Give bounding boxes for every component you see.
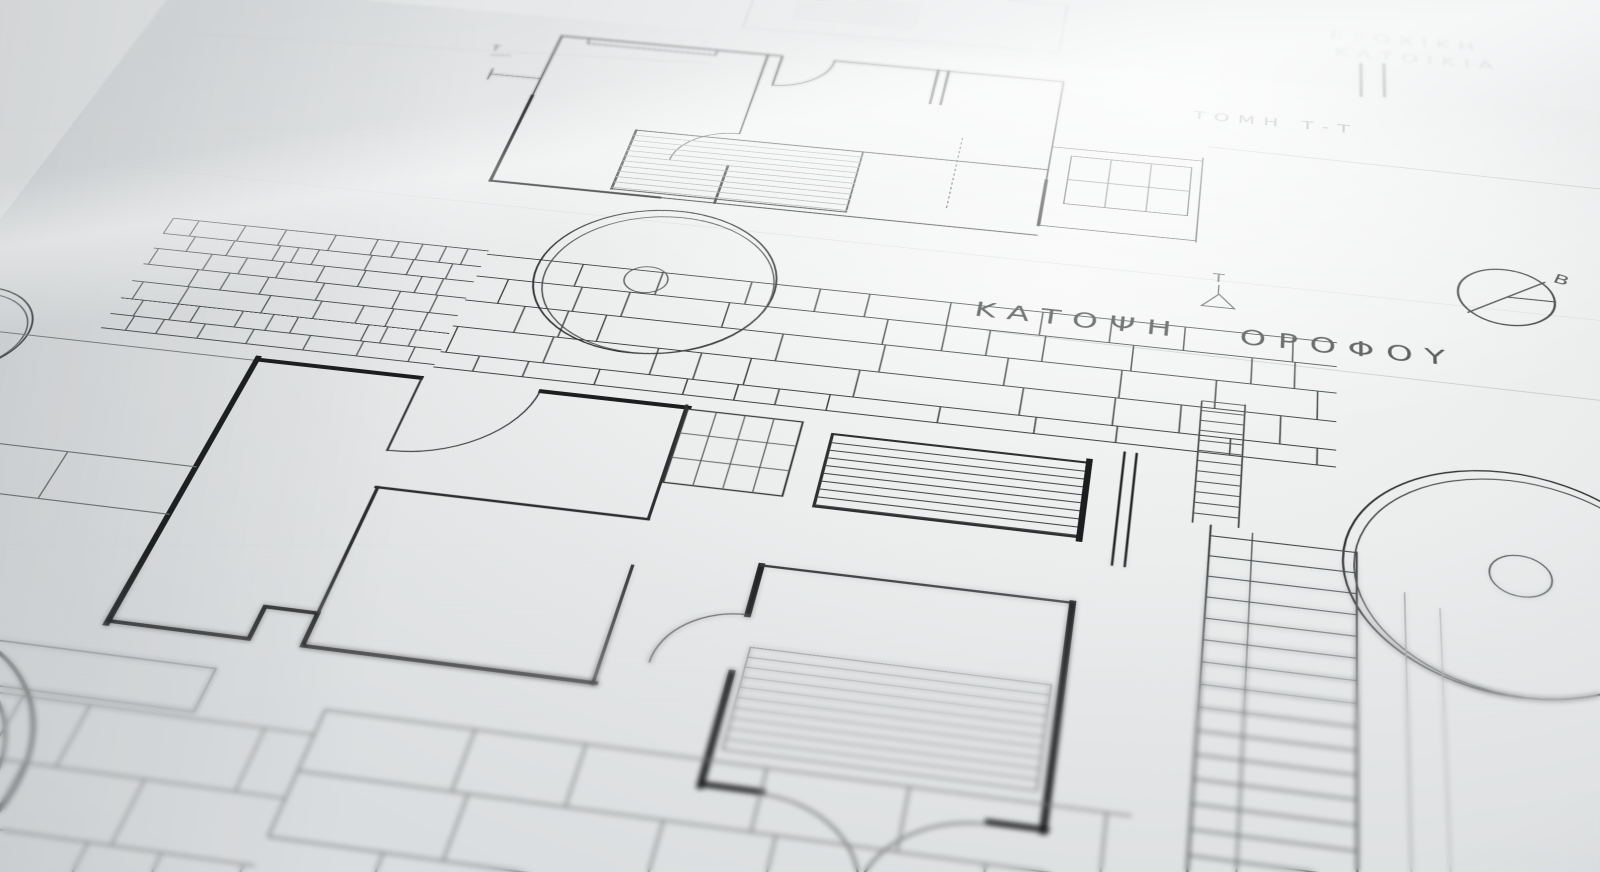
tile-line	[406, 260, 414, 275]
tile-line	[111, 779, 145, 845]
tile-line	[226, 241, 235, 256]
wall-thick	[941, 71, 949, 104]
tile-line	[328, 235, 337, 250]
wall	[1052, 147, 1203, 161]
floor-plan-drawing: ΕΞΟΧΙΚΗ ΚΑΤΟΙΚΙΑ ΤΟΜΗ Τ-Τ ΚΑΤΟΨΗ ΟΡΟΦΟΥ …	[0, 0, 1600, 872]
tile-line	[1317, 391, 1318, 420]
tile-line	[311, 250, 319, 265]
tile-line	[775, 334, 783, 361]
window	[587, 43, 715, 55]
door-arc	[854, 809, 989, 872]
tile-line	[619, 171, 851, 194]
tree-canopy-icon	[0, 595, 98, 872]
tile-line	[975, 864, 986, 872]
tile-line	[415, 244, 423, 260]
window-tick	[716, 50, 718, 55]
north-symbol: Β	[1456, 261, 1578, 332]
tile-line	[1195, 492, 1240, 497]
tile-line	[202, 254, 212, 270]
tile-line	[596, 315, 606, 341]
tile-line	[682, 379, 687, 395]
tile-line	[723, 416, 746, 490]
tile-line	[734, 708, 1043, 748]
tile-line	[1068, 180, 1190, 192]
tree-canopy-icon	[1354, 463, 1600, 719]
tile-line	[443, 794, 468, 861]
tile-line	[385, 309, 394, 327]
tile-line	[1112, 398, 1115, 426]
tile-line	[446, 326, 458, 352]
tile-line	[429, 295, 438, 312]
tree-trunk-icon	[1488, 552, 1554, 600]
tile-line	[1192, 804, 1357, 826]
tile-line	[315, 283, 325, 300]
tree-symbol-right	[1342, 455, 1600, 720]
tile-line	[594, 369, 600, 385]
tile-line	[1196, 481, 1241, 486]
terrace-line	[0, 476, 169, 514]
tile-line	[1197, 460, 1242, 465]
wall	[740, 55, 768, 134]
tile-line	[644, 820, 664, 872]
tile-line	[259, 277, 269, 294]
tile-line	[265, 314, 274, 330]
tile-line	[1197, 731, 1357, 751]
wall	[562, 36, 781, 56]
tile-line	[775, 389, 780, 405]
tile-line	[298, 710, 326, 771]
tile-line	[131, 853, 162, 872]
wall-thick	[989, 822, 1046, 830]
tile-line	[1280, 416, 1281, 444]
wall-stub	[490, 74, 541, 79]
tile-line	[357, 270, 366, 286]
tile-line	[832, 443, 1088, 472]
tile-line	[826, 395, 830, 411]
tile-area-outline	[663, 409, 803, 496]
wall-thick	[701, 784, 761, 792]
marker-tick	[1218, 285, 1219, 294]
tile-line	[1207, 576, 1356, 594]
faint-line	[743, 24, 1060, 56]
tile-line	[392, 291, 401, 308]
tile-line	[1119, 370, 1122, 398]
tile-grid-small	[1064, 156, 1192, 216]
tile-line	[148, 249, 158, 265]
faint-wall	[1384, 63, 1385, 97]
tile-line	[693, 412, 717, 485]
wall-thick	[542, 391, 689, 407]
tile-line	[1198, 707, 1357, 727]
wall	[863, 152, 1048, 170]
tile-line	[882, 319, 888, 344]
tile-line	[612, 187, 846, 210]
tile-line	[743, 358, 751, 385]
tile-line	[178, 287, 189, 304]
tile-line	[655, 273, 663, 295]
tile-line	[380, 327, 388, 343]
tile-line	[621, 292, 630, 316]
tile-line	[1206, 597, 1357, 615]
tile-line	[1202, 662, 1357, 681]
wall-thick	[1038, 180, 1046, 225]
stair-treads-lower	[725, 657, 1049, 779]
tile-line	[728, 728, 1040, 768]
tile-line	[826, 466, 1085, 496]
tile-line	[522, 361, 529, 376]
tile-line	[742, 677, 1047, 716]
tile-line	[626, 156, 856, 178]
tile-line	[355, 306, 364, 324]
tile-line	[1194, 779, 1358, 800]
tile-line	[1251, 358, 1252, 384]
tile-line	[276, 262, 285, 278]
tile-line	[734, 384, 739, 400]
tile-line	[1205, 618, 1357, 636]
upper-floor-plan	[437, 31, 1209, 251]
door-arc	[772, 57, 834, 90]
wall-thick	[748, 565, 762, 614]
tile-line	[238, 258, 248, 274]
tile-line	[121, 298, 449, 334]
wall	[1196, 158, 1203, 242]
tree-symbol-bottom-left	[0, 594, 98, 872]
walkway-tiles	[1146, 400, 1462, 872]
tile-line	[1200, 430, 1244, 435]
tile-line	[1003, 358, 1008, 386]
tile-line	[419, 312, 428, 330]
tile-line	[189, 221, 199, 236]
tile-line	[360, 325, 368, 341]
ground-floor-plan	[0, 323, 1137, 872]
tile-line	[1215, 380, 1217, 408]
tile-line	[748, 657, 1050, 695]
tile-line	[316, 266, 325, 282]
plan-title: ΚΑΤΟΨΗ ΟΡΟΦΟΥ	[972, 298, 1457, 372]
tile-line	[514, 306, 526, 332]
wall-thick	[107, 358, 258, 624]
tile-line	[487, 254, 1337, 343]
tile-line	[0, 867, 226, 872]
tile-line	[497, 279, 508, 303]
architectural-blueprint-photo: ΕΞΟΧΙΚΗ ΚΑΤΟΙΚΙΑ ΤΟΜΗ Τ-Τ ΚΑΤΟΨΗ ΟΡΟΦΟΥ …	[0, 0, 1600, 872]
wall	[1038, 225, 1195, 241]
tile-line	[1190, 829, 1357, 851]
tile-line	[820, 489, 1082, 519]
tile-line	[154, 248, 474, 282]
terrace-tick	[38, 452, 68, 499]
section-arrow-icon	[1202, 293, 1236, 309]
tile-line	[163, 233, 481, 266]
faint-line	[1207, 147, 1600, 202]
garden-path-tiles	[100, 218, 1337, 467]
tile-line	[1199, 440, 1243, 445]
tile-line	[941, 326, 946, 351]
walkway-edge	[1357, 551, 1358, 872]
hidden-edge-dotted	[946, 138, 963, 210]
stair-treads-upper	[612, 135, 861, 210]
double-wall	[1125, 454, 1137, 567]
double-wall	[1112, 452, 1125, 565]
tile-line	[312, 301, 322, 319]
tree-symbol-left-edge	[0, 280, 56, 380]
tile-line	[408, 347, 415, 362]
tile-area-outline	[1064, 156, 1192, 216]
tile-line	[1188, 855, 1357, 872]
tile-line	[739, 687, 1045, 726]
faint-line	[279, 0, 585, 10]
tile-line	[277, 230, 286, 245]
tile-line	[1230, 439, 1231, 456]
tile-line	[814, 289, 820, 312]
tile-line	[816, 505, 1080, 536]
tile-line	[725, 739, 1038, 780]
tile-line	[1195, 754, 1357, 775]
tile-line	[1203, 640, 1357, 659]
tile-line	[572, 287, 582, 311]
door-arc	[649, 605, 747, 673]
tile-line	[156, 319, 165, 333]
tile-line	[737, 697, 1045, 736]
tile-line	[188, 270, 199, 287]
tile-line	[163, 218, 173, 233]
tile-line	[822, 481, 1083, 511]
terrace-line	[0, 430, 196, 466]
tile-line	[1193, 513, 1239, 518]
north-letter: Β	[1550, 271, 1572, 288]
tile-line	[1202, 401, 1245, 406]
tile-line	[751, 768, 767, 832]
tile-line	[303, 335, 311, 350]
tile-line	[745, 667, 1049, 705]
tile-line	[937, 407, 940, 423]
tile-line	[828, 458, 1086, 487]
tile-line	[1131, 345, 1134, 371]
tile-line	[234, 311, 243, 327]
tile-line	[621, 166, 852, 189]
tile-line	[1294, 362, 1295, 388]
tile-line	[946, 303, 951, 326]
wall-thick	[930, 70, 938, 103]
tile-line	[460, 249, 468, 265]
door-leaf	[387, 378, 422, 450]
tile-line	[1019, 388, 1024, 415]
tile-line	[799, 0, 922, 6]
tile-line	[186, 237, 195, 252]
tile-line	[632, 140, 860, 162]
tile-line	[355, 853, 383, 872]
tile-line	[759, 835, 776, 872]
tile-line	[574, 264, 583, 286]
section-title: ΤΟΜΗ Τ-Τ	[1192, 109, 1359, 137]
wall-thick	[257, 360, 420, 378]
tile-line	[132, 282, 143, 299]
walkway-edge	[1238, 405, 1245, 528]
tile-line	[1116, 426, 1118, 442]
tile-line	[236, 226, 245, 241]
tile-line	[220, 273, 230, 290]
tile-line	[56, 705, 91, 767]
tile-line	[290, 317, 299, 333]
tile-line	[364, 255, 372, 270]
tile-line	[190, 306, 200, 322]
wall	[761, 565, 1072, 602]
tile-line	[169, 304, 179, 320]
tile-grid-bottom-left	[0, 681, 314, 872]
tile-line	[623, 161, 854, 184]
tile-line	[272, 246, 281, 261]
door-arc	[387, 379, 540, 465]
tile-line	[356, 341, 364, 356]
faint-line	[1440, 608, 1454, 872]
tile-line	[132, 281, 458, 316]
wall-thick	[490, 96, 532, 181]
wall	[376, 487, 648, 519]
window-tick	[587, 39, 589, 44]
wall	[648, 405, 686, 519]
tile-line	[55, 842, 88, 872]
faint-line	[1405, 592, 1415, 872]
tile-line	[721, 303, 729, 328]
tile-line	[110, 313, 441, 349]
tile-line	[649, 348, 659, 374]
tile-grid-bottom	[208, 710, 1131, 872]
wall-thick	[700, 672, 732, 786]
tile-line	[133, 300, 143, 316]
faint-stair-hatch	[791, 0, 922, 28]
tile-line	[370, 239, 378, 255]
tile-line	[439, 247, 447, 263]
tile-line	[853, 370, 860, 397]
tile-line	[1194, 502, 1240, 507]
tile-line	[391, 242, 399, 258]
tile-line	[290, 248, 299, 263]
section-marker-left-group: Τ	[487, 44, 516, 57]
tile-line	[693, 353, 702, 380]
tile-line	[830, 450, 1087, 479]
tile-line	[745, 282, 752, 304]
tile-line	[614, 182, 848, 205]
tile-line	[731, 718, 1041, 758]
foreground-tiles	[0, 606, 1134, 872]
section-marker-right: Τ	[1211, 271, 1226, 285]
tile-line	[0, 681, 314, 734]
wall	[318, 487, 377, 612]
labels: ΕΞΟΧΙΚΗ ΚΑΤΟΙΚΙΑ ΤΟΜΗ Τ-Τ ΚΑΤΟΨΗ ΟΡΟΦΟΥ	[972, 3, 1530, 379]
tile-line	[628, 150, 857, 172]
terrace-line	[0, 328, 256, 361]
tile-line	[174, 218, 489, 251]
wall-thick	[108, 589, 607, 683]
tile-line	[824, 473, 1084, 503]
faint-guide-line	[121, 166, 1600, 332]
walkway-line	[1224, 533, 1253, 872]
tile-line	[408, 330, 416, 346]
tile-line	[452, 730, 476, 792]
tile-line	[268, 837, 1119, 872]
tile-line	[897, 787, 909, 852]
tree-canopy-icon	[1342, 455, 1600, 720]
walkway-edge	[1192, 401, 1201, 523]
tile-line	[879, 345, 886, 372]
north-radius-line	[1506, 297, 1555, 302]
tile-line	[1034, 417, 1037, 433]
door-leaf	[772, 56, 782, 85]
tile-line	[1200, 420, 1244, 425]
faint-line	[192, 17, 709, 82]
tile-band-right	[433, 254, 1337, 467]
faint-room-outline	[743, 0, 1068, 56]
tile-line	[565, 744, 586, 807]
wall	[593, 566, 633, 684]
drawing-sheet: ΕΞΟΧΙΚΗ ΚΑΤΟΙΚΙΑ ΤΟΜΗ Τ-Τ ΚΑΤΟΨΗ ΟΡΟΦΟΥ …	[0, 0, 1600, 872]
tree-canopy-icon	[0, 280, 56, 380]
tile-line	[1196, 471, 1241, 476]
tile-line	[246, 329, 254, 343]
stair-outline	[814, 434, 1091, 537]
tile-line	[197, 324, 206, 338]
walkway-edge	[1170, 525, 1211, 872]
tile-line	[235, 728, 265, 791]
tile-line	[472, 356, 479, 371]
tile-line	[1292, 338, 1293, 362]
tile-line	[414, 276, 422, 292]
tile-line	[1042, 336, 1046, 362]
tile-line	[543, 337, 554, 363]
tile-line	[125, 316, 134, 330]
tile-line	[0, 742, 285, 798]
tile-line	[1209, 556, 1357, 573]
tile-line	[986, 330, 991, 355]
tile-band-left	[101, 218, 488, 364]
tile-line	[215, 864, 244, 872]
tile-line	[634, 135, 861, 157]
tile-line	[1210, 536, 1357, 553]
section-marker-right-group: Τ	[1202, 271, 1237, 309]
tile-line	[1179, 405, 1181, 433]
tile-line	[268, 771, 298, 837]
tile-line	[1100, 813, 1107, 872]
wall-thick	[1079, 461, 1089, 540]
wall	[612, 130, 637, 189]
tile-line	[436, 279, 444, 295]
tile-line	[261, 296, 271, 313]
tile-line	[752, 419, 774, 493]
tile-line	[1200, 684, 1357, 703]
tile-line	[864, 294, 870, 317]
marker-tick	[491, 54, 512, 57]
tile-line	[445, 264, 452, 279]
